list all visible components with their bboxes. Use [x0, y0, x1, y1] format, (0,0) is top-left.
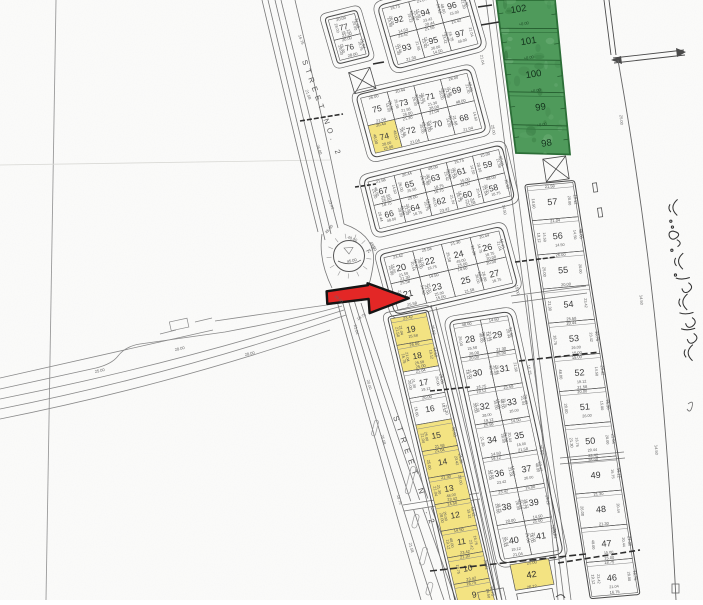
- svg-text:20.44: 20.44: [621, 537, 626, 547]
- svg-text:14.50: 14.50: [639, 295, 645, 306]
- svg-text:23.42: 23.42: [583, 298, 588, 308]
- svg-text:51: 51: [579, 401, 590, 412]
- svg-text:35: 35: [513, 430, 524, 441]
- svg-text:15: 15: [431, 429, 442, 441]
- svg-text:52: 52: [574, 367, 585, 378]
- svg-text:20.44: 20.44: [616, 503, 621, 513]
- svg-text:14.50: 14.50: [654, 445, 660, 456]
- svg-text:12: 12: [450, 509, 461, 521]
- svg-text:20.00: 20.00: [605, 435, 610, 445]
- svg-text:25.00: 25.00: [542, 267, 548, 278]
- svg-text:14.50: 14.50: [594, 366, 599, 376]
- svg-text:34: 34: [486, 434, 497, 445]
- svg-text:98: 98: [541, 137, 553, 150]
- svg-text:16.75: 16.75: [609, 589, 620, 595]
- svg-text:21.30: 21.30: [627, 536, 633, 547]
- svg-text:26.00: 26.00: [582, 414, 592, 419]
- svg-text:47: 47: [601, 538, 612, 549]
- svg-text:46: 46: [606, 572, 617, 583]
- svg-text:48.00: 48.00: [578, 228, 584, 239]
- svg-text:16: 16: [424, 403, 435, 415]
- svg-text:20.00: 20.00: [577, 388, 588, 394]
- svg-text:15.00: 15.00: [599, 401, 604, 411]
- svg-text:21.58: 21.58: [545, 183, 556, 189]
- svg-text:19.12: 19.12: [590, 574, 596, 585]
- svg-text:20.00: 20.00: [578, 264, 583, 274]
- svg-text:20.00: 20.00: [563, 403, 569, 414]
- svg-text:54: 54: [563, 299, 574, 310]
- svg-text:28.00: 28.00: [588, 457, 599, 463]
- svg-text:48.00: 48.00: [591, 540, 596, 550]
- svg-text:23.42: 23.42: [600, 365, 606, 376]
- svg-text:14: 14: [437, 456, 448, 468]
- svg-text:19.12: 19.12: [616, 468, 622, 479]
- svg-text:23.42: 23.42: [588, 332, 593, 342]
- svg-text:14.50: 14.50: [572, 230, 577, 240]
- svg-text:21.30: 21.30: [593, 491, 604, 497]
- svg-text:55: 55: [558, 265, 569, 276]
- svg-text:48.00: 48.00: [558, 369, 564, 380]
- svg-text:21.04: 21.04: [550, 217, 561, 223]
- svg-text:57: 57: [547, 196, 558, 207]
- svg-text:26.00: 26.00: [555, 252, 566, 258]
- svg-text:16.75: 16.75: [594, 331, 600, 342]
- svg-text:16.75: 16.75: [610, 469, 615, 479]
- svg-text:19.12: 19.12: [536, 232, 542, 243]
- svg-text:26.00: 26.00: [579, 506, 585, 517]
- svg-text:48: 48: [596, 504, 607, 515]
- svg-text:18.75: 18.75: [552, 335, 558, 346]
- svg-text:18.75: 18.75: [604, 559, 615, 565]
- svg-text:20.00: 20.00: [567, 196, 572, 206]
- svg-text:16.75: 16.75: [632, 570, 638, 581]
- svg-text:56: 56: [552, 230, 563, 241]
- svg-text:19.12: 19.12: [573, 194, 579, 205]
- svg-text:53: 53: [569, 333, 580, 344]
- svg-text:14.50: 14.50: [531, 198, 537, 209]
- svg-text:20.44: 20.44: [566, 320, 577, 326]
- svg-text:21.04: 21.04: [610, 433, 616, 444]
- svg-text:21.30: 21.30: [569, 437, 575, 448]
- svg-text:25.00: 25.00: [619, 115, 625, 126]
- svg-text:99: 99: [535, 101, 547, 114]
- svg-text:49: 49: [590, 470, 601, 481]
- svg-text:37: 37: [521, 463, 532, 474]
- svg-text:42: 42: [526, 569, 537, 580]
- svg-text:21.30: 21.30: [547, 301, 553, 312]
- svg-text:28: 28: [464, 333, 475, 344]
- svg-text:50: 50: [585, 436, 596, 447]
- svg-text:21.30: 21.30: [605, 399, 611, 410]
- svg-text:28.00: 28.00: [626, 571, 631, 581]
- svg-text:14.50: 14.50: [555, 243, 565, 248]
